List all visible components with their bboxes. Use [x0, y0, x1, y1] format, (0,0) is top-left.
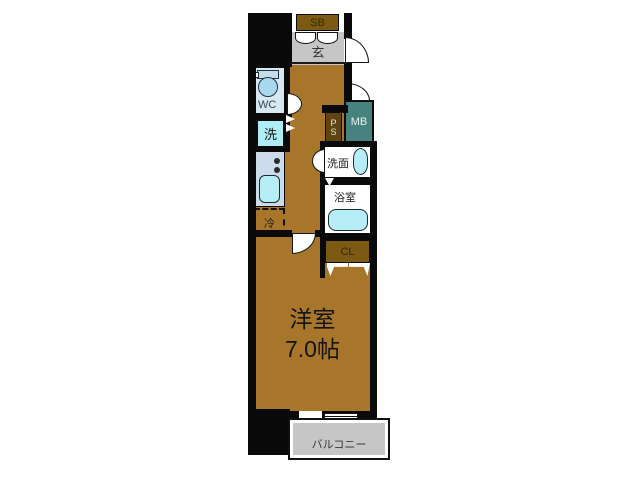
bathroom-label: 浴室	[334, 189, 356, 205]
wall	[248, 409, 290, 455]
meter-box: MB	[344, 100, 374, 143]
pipe-space: P S	[325, 112, 342, 143]
wall	[248, 230, 292, 237]
shoebox-door-arc-icon	[317, 32, 338, 44]
balcony-label-wrap: バルコニー	[290, 420, 388, 458]
wall	[320, 141, 377, 147]
closet-label: CL	[340, 246, 354, 258]
washbasin-icon	[353, 148, 368, 175]
wall	[344, 62, 352, 102]
balcony: バルコニー	[288, 418, 390, 460]
main-room-size: 7.0帖	[255, 335, 370, 365]
window-sash-line	[325, 416, 357, 417]
kitchen-sink-icon	[259, 175, 280, 203]
washroom-label: 洗面	[327, 155, 349, 171]
shoebox-door-arc-icon	[295, 32, 316, 44]
main-room-label: 洋室 7.0帖	[255, 305, 370, 365]
refrigerator-label: 冷	[264, 215, 275, 231]
stove-burner-icon	[274, 158, 280, 164]
floorplan: 玄 SB WC 洗 冷 P S	[0, 0, 640, 480]
wall	[315, 230, 325, 237]
main-room-name: 洋室	[255, 305, 370, 335]
washer-space: 洗	[255, 118, 286, 149]
toilet-bowl-icon	[258, 77, 278, 97]
floorplan-screenshot: 玄 SB WC 洗 冷 P S	[0, 0, 640, 480]
closet: CL	[325, 240, 370, 263]
wall	[320, 233, 377, 241]
wall	[344, 13, 352, 39]
wall	[248, 148, 286, 152]
wc-label: WC	[258, 99, 276, 111]
bathtub-icon	[328, 209, 368, 231]
genkan-step-line	[290, 62, 344, 64]
genkan-label: 玄	[311, 42, 324, 61]
wall	[322, 105, 348, 113]
stove-burner-icon	[274, 167, 280, 173]
pipe-space-label-s: S	[330, 128, 336, 137]
washer-label: 洗	[264, 124, 277, 143]
balcony-label: バルコニー	[312, 436, 367, 452]
shoe-box-label: SB	[310, 17, 325, 29]
shoe-box: SB	[296, 14, 339, 31]
meter-box-label: MB	[351, 116, 368, 128]
